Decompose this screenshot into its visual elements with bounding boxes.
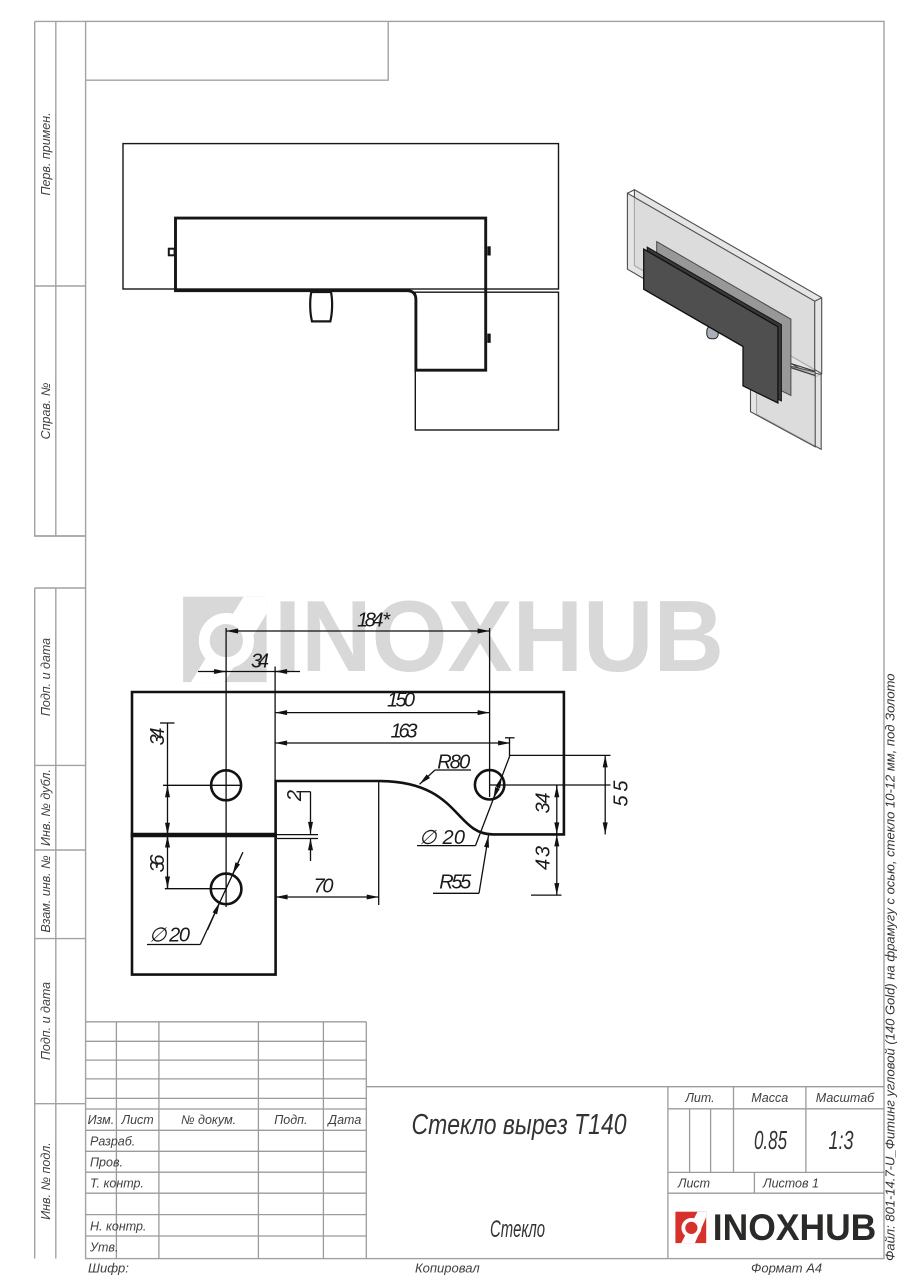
svg-text:163: 163 [391, 721, 418, 743]
svg-text:Инв. № дубл.: Инв. № дубл. [39, 769, 53, 846]
svg-text:34: 34 [533, 793, 555, 814]
svg-text:Листов 1: Листов 1 [762, 1176, 819, 1190]
svg-text:43: 43 [533, 846, 555, 870]
svg-text:Лит.: Лит. [684, 1091, 714, 1105]
svg-text:70: 70 [314, 876, 334, 898]
svg-text:34: 34 [147, 728, 169, 746]
svg-text:R55: R55 [439, 872, 472, 894]
svg-text:Инв. № подл.: Инв. № подл. [39, 1142, 53, 1220]
svg-text:∅ 20: ∅ 20 [149, 925, 190, 947]
svg-text:Разраб.: Разраб. [90, 1135, 135, 1149]
svg-text:Н. контр.: Н. контр. [90, 1219, 146, 1233]
svg-text:Шифр:: Шифр: [88, 1261, 129, 1276]
svg-text:INOXHUB: INOXHUB [713, 1206, 877, 1248]
svg-text:2: 2 [284, 790, 306, 802]
svg-text:Лист: Лист [121, 1113, 154, 1127]
svg-text:Подп.: Подп. [274, 1113, 307, 1127]
svg-text:Утв.: Утв. [89, 1241, 118, 1255]
svg-text:Масса: Масса [751, 1091, 788, 1105]
svg-text:Масштаб: Масштаб [816, 1091, 875, 1105]
svg-text:INOXHUB: INOXHUB [274, 581, 724, 693]
svg-text:55: 55 [611, 780, 633, 807]
svg-text:Перв. примен.: Перв. примен. [39, 112, 53, 195]
svg-text:Подп. и дата: Подп. и дата [39, 638, 53, 716]
svg-text:Лист: Лист [677, 1176, 710, 1190]
svg-text:36: 36 [147, 854, 169, 873]
svg-text:Пров.: Пров. [90, 1156, 123, 1170]
svg-text:Копировал: Копировал [415, 1261, 480, 1276]
svg-text:Формат А4: Формат А4 [751, 1261, 822, 1276]
svg-text:Подп. и дата: Подп. и дата [39, 982, 53, 1060]
svg-text:R80: R80 [437, 752, 470, 774]
svg-text:∅ 20: ∅ 20 [419, 827, 465, 849]
svg-text:Изм.: Изм. [88, 1113, 115, 1127]
svg-text:150: 150 [387, 690, 415, 712]
svg-text:Файл: 801-14.7-U_Фитинг углово: Файл: 801-14.7-U_Фитинг угловой (140 Gol… [883, 674, 898, 1262]
svg-text:34: 34 [251, 651, 269, 673]
svg-text:Дата: Дата [326, 1113, 361, 1127]
svg-text:№ докум.: № докум. [181, 1113, 236, 1127]
svg-text:Т. контр.: Т. контр. [90, 1177, 144, 1191]
svg-text:184 *: 184 * [357, 610, 391, 632]
svg-text:Справ. №: Справ. № [39, 382, 53, 439]
svg-text:Взам. инв. №: Взам. инв. № [39, 855, 53, 933]
svg-text:0.85: 0.85 [754, 1125, 787, 1155]
svg-text:1:3: 1:3 [829, 1125, 854, 1155]
svg-text:Стекло: Стекло [490, 1216, 545, 1243]
svg-text:Стекло вырез Т140: Стекло вырез Т140 [412, 1109, 627, 1141]
